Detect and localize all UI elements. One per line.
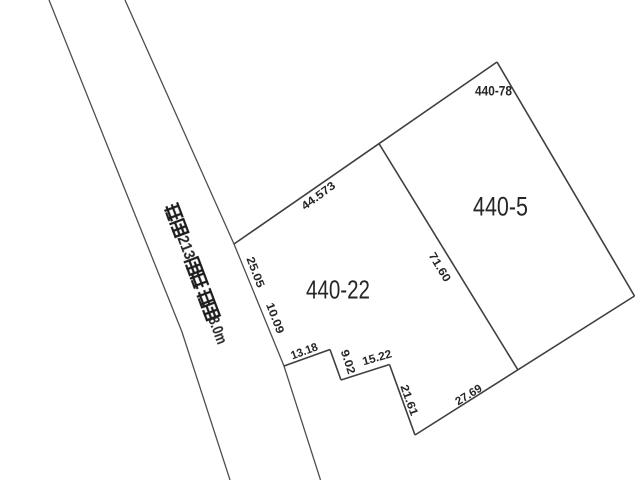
svg-text:10.09: 10.09 xyxy=(263,301,286,335)
svg-text:27.69: 27.69 xyxy=(453,383,484,408)
svg-text:440-78: 440-78 xyxy=(475,84,512,99)
svg-text:21.61: 21.61 xyxy=(397,383,419,418)
svg-text:9.02: 9.02 xyxy=(338,348,357,375)
svg-text:25.05: 25.05 xyxy=(243,255,266,290)
svg-text:8.0m: 8.0m xyxy=(204,315,230,347)
svg-text:440-22: 440-22 xyxy=(306,275,370,305)
svg-text:440-5: 440-5 xyxy=(473,192,528,222)
